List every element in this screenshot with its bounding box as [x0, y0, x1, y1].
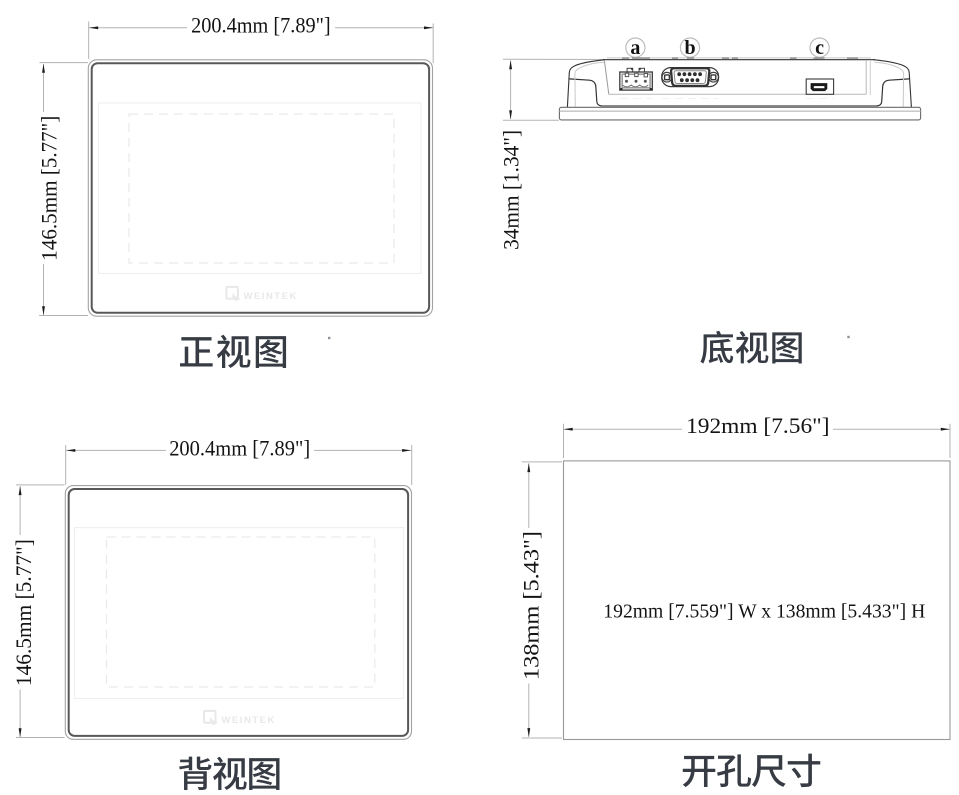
svg-text:200.4mm [7.89"]: 200.4mm [7.89"] — [169, 436, 310, 461]
svg-text:146.5mm [5.77"]: 146.5mm [5.77"] — [37, 116, 62, 261]
svg-text:192mm [7.559"] W x 138mm [5.43: 192mm [7.559"] W x 138mm [5.433"] H — [603, 600, 925, 622]
svg-text:34mm [1.34"]: 34mm [1.34"] — [498, 130, 523, 250]
svg-text:WEINTEK: WEINTEK — [244, 291, 298, 302]
svg-text:a: a — [630, 37, 640, 59]
svg-text:b: b — [684, 37, 695, 59]
svg-text:200.4mm [7.89"]: 200.4mm [7.89"] — [191, 13, 331, 38]
svg-text:138mm [5.43"]: 138mm [5.43"] — [519, 531, 544, 680]
svg-text:192mm [7.56"]: 192mm [7.56"] — [686, 413, 829, 438]
svg-text:WEINTEK: WEINTEK — [222, 715, 276, 726]
svg-text:c: c — [815, 37, 824, 59]
svg-text:146.5mm [5.77"]: 146.5mm [5.77"] — [11, 539, 36, 686]
